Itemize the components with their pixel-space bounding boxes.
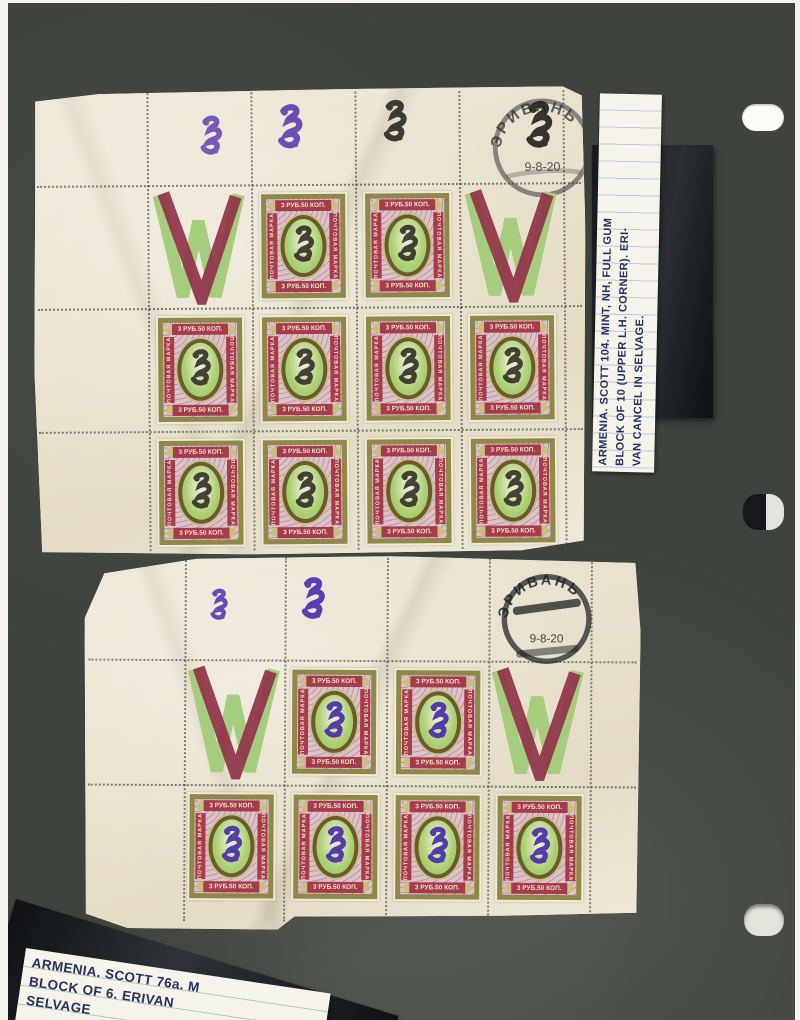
stamp: 3 РУБ.50 КОП. ПОЧТОВАЯ МАРКА ПОЧТОВАЯ МА… [259,192,348,301]
perforation-line [88,784,636,789]
stamp-center-oval [489,336,535,398]
binder-hole [743,494,784,530]
stamp: 3 РУБ.50 КОП. ПОЧТОВАЯ МАРКА ПОЧТОВАЯ МА… [365,437,454,546]
stamp-value-top: 3 РУБ.50 КОП. [512,802,568,813]
stamp-value-top: 3 РУБ.50 КОП. [173,447,229,458]
stamp-center-oval [178,462,224,524]
stamp-position: 3 РУБ.50 КОП. ПОЧТОВАЯ МАРКА ПОЧТОВАЯ МА… [365,437,454,546]
registration-mark [186,661,281,779]
perforation-line [250,92,255,550]
stamp-side-left: ПОЧТОВАЯ МАРКА [165,460,175,526]
stamp-side-right: ПОЧТОВАЯ МАРКА [434,335,444,401]
armenia-overprint-icon [424,700,452,744]
stamp-frame: 3 РУБ.50 КОП. ПОЧТОВАЯ МАРКА ПОЧТОВАЯ МА… [471,438,556,543]
stamp-center-oval [282,461,328,523]
stamp-side-right: ПОЧТОВАЯ МАРКА [226,337,236,403]
stamp-value-top: 3 РУБ.50 КОП. [172,324,228,335]
stamp: 3 РУБ.50 КОП. ПОЧТОВАЯ МАРКА ПОЧТОВАЯ МА… [469,436,558,545]
stamp-side-right: ПОЧТОВАЯ МАРКА [257,813,267,879]
stamp-side-left: ПОЧТОВАЯ МАРКА [195,813,205,879]
stamp: 3 РУБ.50 КОП. ПОЧТОВАЯ МАРКА ПОЧТОВАЯ МА… [156,315,245,424]
stamp-center-oval [311,691,357,753]
registration-mark [490,663,585,781]
stamp-center-oval [385,337,431,399]
perforation-line [38,305,582,311]
armenia-overprint-icon [290,347,318,391]
stamp-value-top: 3 РУБ.50 КОП. [276,323,332,334]
stamp-value-bottom: 3 РУБ.50 КОП. [203,881,259,892]
selvage-handstamp-violet [272,100,306,158]
stamp-side-left: ПОЧТОВАЯ МАРКА [402,689,412,755]
stamp-side-right: ПОЧТОВАЯ МАРКА [538,334,548,400]
stamp-frame: 3 РУБ.50 КОП. ПОЧТОВАЯ МАРКА ПОЧТОВАЯ МА… [367,439,452,544]
stamp-frame: 3 РУБ.50 КОП. ПОЧТОВАЯ МАРКА ПОЧТОВАЯ МА… [159,440,244,545]
binder-hole [744,904,784,936]
perforation-line [146,93,151,551]
stamp-value-top: 3 РУБ.50 КОП. [275,200,331,211]
stamp-frame: 3 РУБ.50 КОП. ПОЧТОВАЯ МАРКА ПОЧТОВАЯ МА… [292,670,377,774]
stamp-value-bottom: 3 РУБ.50 КОП. [485,525,541,536]
stamp: 3 РУБ.50 КОП. ПОЧТОВАЯ МАРКА ПОЧТОВАЯ МА… [495,794,584,902]
stamp-position: 3 РУБ.50 КОП. ПОЧТОВАЯ МАРКА ПОЧТОВАЯ МА… [291,793,380,901]
stamp-position: 3 РУБ.50 КОП. ПОЧТОВАЯ МАРКА ПОЧТОВАЯ МА… [364,314,453,423]
stamp-frame: 3 РУБ.50 КОП. ПОЧТОВАЯ МАРКА ПОЧТОВАЯ МА… [365,193,450,298]
stamp-side-right: ПОЧТОВАЯ МАРКА [331,459,341,525]
stamp-frame: 3 РУБ.50 КОП. ПОЧТОВАЯ МАРКА ПОЧТОВАЯ МА… [497,796,582,900]
stamp-position: 3 РУБ.50 КОП. ПОЧТОВАЯ МАРКА ПОЧТОВАЯ МА… [469,436,558,545]
selvage-handstamp-violet [207,585,231,627]
stamp-value-bottom: 3 РУБ.50 КОП. [409,882,465,893]
armenia-overprint-icon [291,470,319,514]
stamp-center-oval [177,339,223,401]
stamp: 3 РУБ.50 КОП. ПОЧТОВАЯ МАРКА ПОЧТОВАЯ МА… [290,668,379,776]
stamp-value-bottom: 3 РУБ.50 КОП. [276,281,332,292]
stamp-center-oval [312,816,358,878]
stamp-value-bottom: 3 РУБ.50 КОП. [277,404,333,415]
stamp: 3 РУБ.50 КОП. ПОЧТОВАЯ МАРКА ПОЧТОВАЯ МА… [363,191,452,300]
stamp-side-right: ПОЧТОВАЯ МАРКА [435,458,445,524]
registration-mark [463,184,558,303]
stamp: 3 РУБ.50 КОП. ПОЧТОВАЯ МАРКА ПОЧТОВАЯ МА… [157,438,246,547]
stamp-frame: 3 РУБ.50 КОП. ПОЧТОВАЯ МАРКА ПОЧТОВАЯ МА… [470,315,555,420]
stamp-value-top: 3 РУБ.50 КОП. [381,445,437,456]
stamp-value-top: 3 РУБ.50 КОП. [380,322,436,333]
postmark-date-text: 9-8-20 [530,632,564,645]
selvage-handstamp-violet [297,576,329,626]
stamp-side-left: ПОЧТОВАЯ МАРКА [477,458,487,524]
stamp-position: 3 РУБ.50 КОП. ПОЧТОВАЯ МАРКА ПОЧТОВАЯ МА… [394,668,483,776]
album-page: ЭРИВАНЬ 9-8-20 3 РУБ.50 КОП. ПОЧТОВАЯ МА… [8,3,795,1020]
stamp: 3 РУБ.50 КОП. ПОЧТОВАЯ МАРКА ПОЧТОВАЯ МА… [394,668,483,776]
stamp-center-oval [516,817,562,879]
stamp-value-bottom: 3 РУБ.50 КОП. [173,528,229,539]
stamp-center-oval [415,691,461,753]
stamp-side-right: ПОЧТОВАЯ МАРКА [464,690,474,756]
stamp-frame: 3 РУБ.50 КОП. ПОЧТОВАЯ МАРКА ПОЧТОВАЯ МА… [293,795,378,899]
selvage-handstamp-violet [196,111,226,165]
armenia-overprint-icon [499,468,527,512]
stamp-value-bottom: 3 РУБ.50 КОП. [511,883,567,894]
stamp-value-bottom: 3 РУБ.50 КОП. [306,757,362,768]
stamp-side-right: ПОЧТОВАЯ МАРКА [330,336,340,402]
stamp-frame: 3 РУБ.50 КОП. ПОЧТОВАЯ МАРКА ПОЧТОВАЯ МА… [262,317,347,422]
stamp-side-right: ПОЧТОВАЯ МАРКА [539,457,549,523]
stamp-position: 3 РУБ.50 КОП. ПОЧТОВАЯ МАРКА ПОЧТОВАЯ МА… [363,191,452,300]
stamp-value-top: 3 РУБ.50 КОП. [410,676,466,687]
stamp-frame: 3 РУБ.50 КОП. ПОЧТОВАЯ МАРКА ПОЧТОВАЯ МА… [263,440,348,545]
stamp-center-oval [384,214,430,276]
stamp-value-bottom: 3 РУБ.50 КОП. [410,757,466,768]
stamp-value-top: 3 РУБ.50 КОП. [277,446,333,457]
armenia-overprint-icon [217,824,245,868]
stamp-center-oval [208,815,254,877]
perforation-line [354,92,359,550]
armenia-overprint-icon [498,345,526,389]
stamp: 3 РУБ.50 КОП. ПОЧТОВАЯ МАРКА ПОЧТОВАЯ МА… [291,793,380,901]
armenia-overprint-icon [395,469,423,513]
stamp-side-left: ПОЧТОВАЯ МАРКА [269,459,279,525]
stamp-side-right: ПОЧТОВАЯ МАРКА [360,689,370,755]
stamp-value-top: 3 РУБ.50 КОП. [379,199,435,210]
stamp-block-lower: ЭРИВАНЬ 9-8-20 3 РУБ.50 КОП. ПОЧТОВАЯ МА… [83,555,641,932]
stamp-side-left: ПОЧТОВАЯ МАРКА [268,336,278,402]
stamp-side-left: ПОЧТОВАЯ МАРКА [503,815,513,881]
stamp-side-left: ПОЧТОВАЯ МАРКА [371,212,381,278]
armenia-overprint-icon [393,223,421,267]
armenia-overprint-icon [525,826,553,870]
stamp-center-oval [280,215,326,277]
stamp-position: 3 РУБ.50 КОП. ПОЧТОВАЯ МАРКА ПОЧТОВАЯ МА… [157,438,246,547]
stamp-side-left: ПОЧТОВАЯ МАРКА [298,689,308,755]
stamp-value-top: 3 РУБ.50 КОП. [306,676,362,687]
stamp-side-right: ПОЧТОВАЯ МАРКА [565,815,575,881]
stamp-position: 3 РУБ.50 КОП. ПОЧТОВАЯ МАРКА ПОЧТОВАЯ МА… [156,315,245,424]
stamp: 3 РУБ.50 КОП. ПОЧТОВАЯ МАРКА ПОЧТОВАЯ МА… [393,793,482,901]
stamp-value-top: 3 РУБ.50 КОП. [484,321,540,332]
stamp-position: 3 РУБ.50 КОП. ПОЧТОВАЯ МАРКА ПОЧТОВАЯ МА… [290,668,379,776]
stamp-value-top: 3 РУБ.50 КОП. [485,444,541,455]
stamp: 3 РУБ.50 КОП. ПОЧТОВАЯ МАРКА ПОЧТОВАЯ МА… [364,314,453,423]
stamp-frame: 3 РУБ.50 КОП. ПОЧТОВАЯ МАРКА ПОЧТОВАЯ МА… [366,316,451,421]
stamp: 3 РУБ.50 КОП. ПОЧТОВАЯ МАРКА ПОЧТОВАЯ МА… [187,792,276,900]
stamp-frame: 3 РУБ.50 КОП. ПОЧТОВАЯ МАРКА ПОЧТОВАЯ МА… [396,670,481,774]
stamp-side-right: ПОЧТОВАЯ МАРКА [433,212,443,278]
stamp: 3 РУБ.50 КОП. ПОЧТОВАЯ МАРКА ПОЧТОВАЯ МА… [260,315,349,424]
armenia-overprint-icon [187,471,215,515]
stamp-value-top: 3 РУБ.50 КОП. [410,801,466,812]
stamp-position: 3 РУБ.50 КОП. ПОЧТОВАЯ МАРКА ПОЧТОВАЯ МА… [187,792,276,900]
stamp-position: 3 РУБ.50 КОП. ПОЧТОВАЯ МАРКА ПОЧТОВАЯ МА… [261,438,350,547]
perforation-line [385,558,389,922]
stamp-side-right: ПОЧТОВАЯ МАРКА [361,814,371,880]
stamp-position: 3 РУБ.50 КОП. ПОЧТОВАЯ МАРКА ПОЧТОВАЯ МА… [260,315,349,424]
stamp: 3 РУБ.50 КОП. ПОЧТОВАЯ МАРКА ПОЧТОВАЯ МА… [261,438,350,547]
stamp-value-bottom: 3 РУБ.50 КОП. [277,527,333,538]
stamp-side-left: ПОЧТОВАЯ МАРКА [267,213,277,279]
stamp-center-oval [490,459,536,521]
stamp-side-left: ПОЧТОВАЯ МАРКА [401,814,411,880]
armenia-overprint-icon [423,825,451,869]
binder-hole [742,104,784,131]
stamp: 3 РУБ.50 КОП. ПОЧТОВАЯ МАРКА ПОЧТОВАЯ МА… [468,313,557,422]
stamp-value-bottom: 3 РУБ.50 КОП. [380,280,436,291]
armenia-overprint-icon [321,825,349,869]
collector-label-right: ARMENIA. SCOTT 104. MINT, NH, FULL GUM B… [592,93,662,472]
stamp-position: 3 РУБ.50 КОП. ПОЧТОВАЯ МАРКА ПОЧТОВАЯ МА… [495,794,584,902]
stamp-value-bottom: 3 РУБ.50 КОП. [485,402,541,413]
stamp-frame: 3 РУБ.50 КОП. ПОЧТОВАЯ МАРКА ПОЧТОВАЯ МА… [158,317,243,422]
stamp-side-right: ПОЧТОВАЯ МАРКА [329,213,339,279]
stamp-value-top: 3 РУБ.50 КОП. [204,800,260,811]
stamp-position: 3 РУБ.50 КОП. ПОЧТОВАЯ МАРКА ПОЧТОВАЯ МА… [259,192,348,301]
stamp-side-left: ПОЧТОВАЯ МАРКА [299,814,309,880]
stamp-side-right: ПОЧТОВАЯ МАРКА [227,460,237,526]
stamp-side-left: ПОЧТОВАЯ МАРКА [164,337,174,403]
stamp-center-oval [281,338,327,400]
selvage-handstamp-black [378,95,410,151]
stamp-block-upper: ЭРИВАНЬ 9-8-20 3 РУБ.50 КОП. ПОЧТОВАЯ МА… [32,86,587,556]
stamp-side-left: ПОЧТОВАЯ МАРКА [373,458,383,524]
registration-mark [151,186,246,305]
stamp-position: 3 РУБ.50 КОП. ПОЧТОВАЯ МАРКА ПОЧТОВАЯ МА… [468,313,557,422]
stamp-side-left: ПОЧТОВАЯ МАРКА [476,335,486,401]
stamp-frame: 3 РУБ.50 КОП. ПОЧТОВАЯ МАРКА ПОЧТОВАЯ МА… [395,795,480,899]
armenia-overprint-icon [320,700,348,744]
perforation-line [283,558,287,922]
stamp-side-right: ПОЧТОВАЯ МАРКА [463,815,473,881]
perforation-line [39,428,583,434]
stamp-value-top: 3 РУБ.50 КОП. [308,801,364,812]
stamp-value-bottom: 3 РУБ.50 КОП. [173,405,229,416]
armenia-overprint-icon [394,346,422,390]
perforation-line [458,91,463,549]
stamp-value-bottom: 3 РУБ.50 КОП. [381,526,437,537]
stamp-value-bottom: 3 РУБ.50 КОП. [381,403,437,414]
stamp-center-oval [414,816,460,878]
stamp-position: 3 РУБ.50 КОП. ПОЧТОВАЯ МАРКА ПОЧТОВАЯ МА… [393,793,482,901]
stamp-side-left: ПОЧТОВАЯ МАРКА [372,335,382,401]
stamp-center-oval [386,460,432,522]
stamp-frame: 3 РУБ.50 КОП. ПОЧТОВАЯ МАРКА ПОЧТОВАЯ МА… [261,194,346,299]
erivan-postmark-lower: ЭРИВАНЬ 9-8-20 [492,565,601,674]
stamp-frame: 3 РУБ.50 КОП. ПОЧТОВАЯ МАРКА ПОЧТОВАЯ МА… [189,794,274,898]
selvage-handstamp-black [520,98,556,156]
armenia-overprint-icon [186,348,214,392]
armenia-overprint-icon [289,224,317,268]
stamp-value-bottom: 3 РУБ.50 КОП. [307,882,363,893]
